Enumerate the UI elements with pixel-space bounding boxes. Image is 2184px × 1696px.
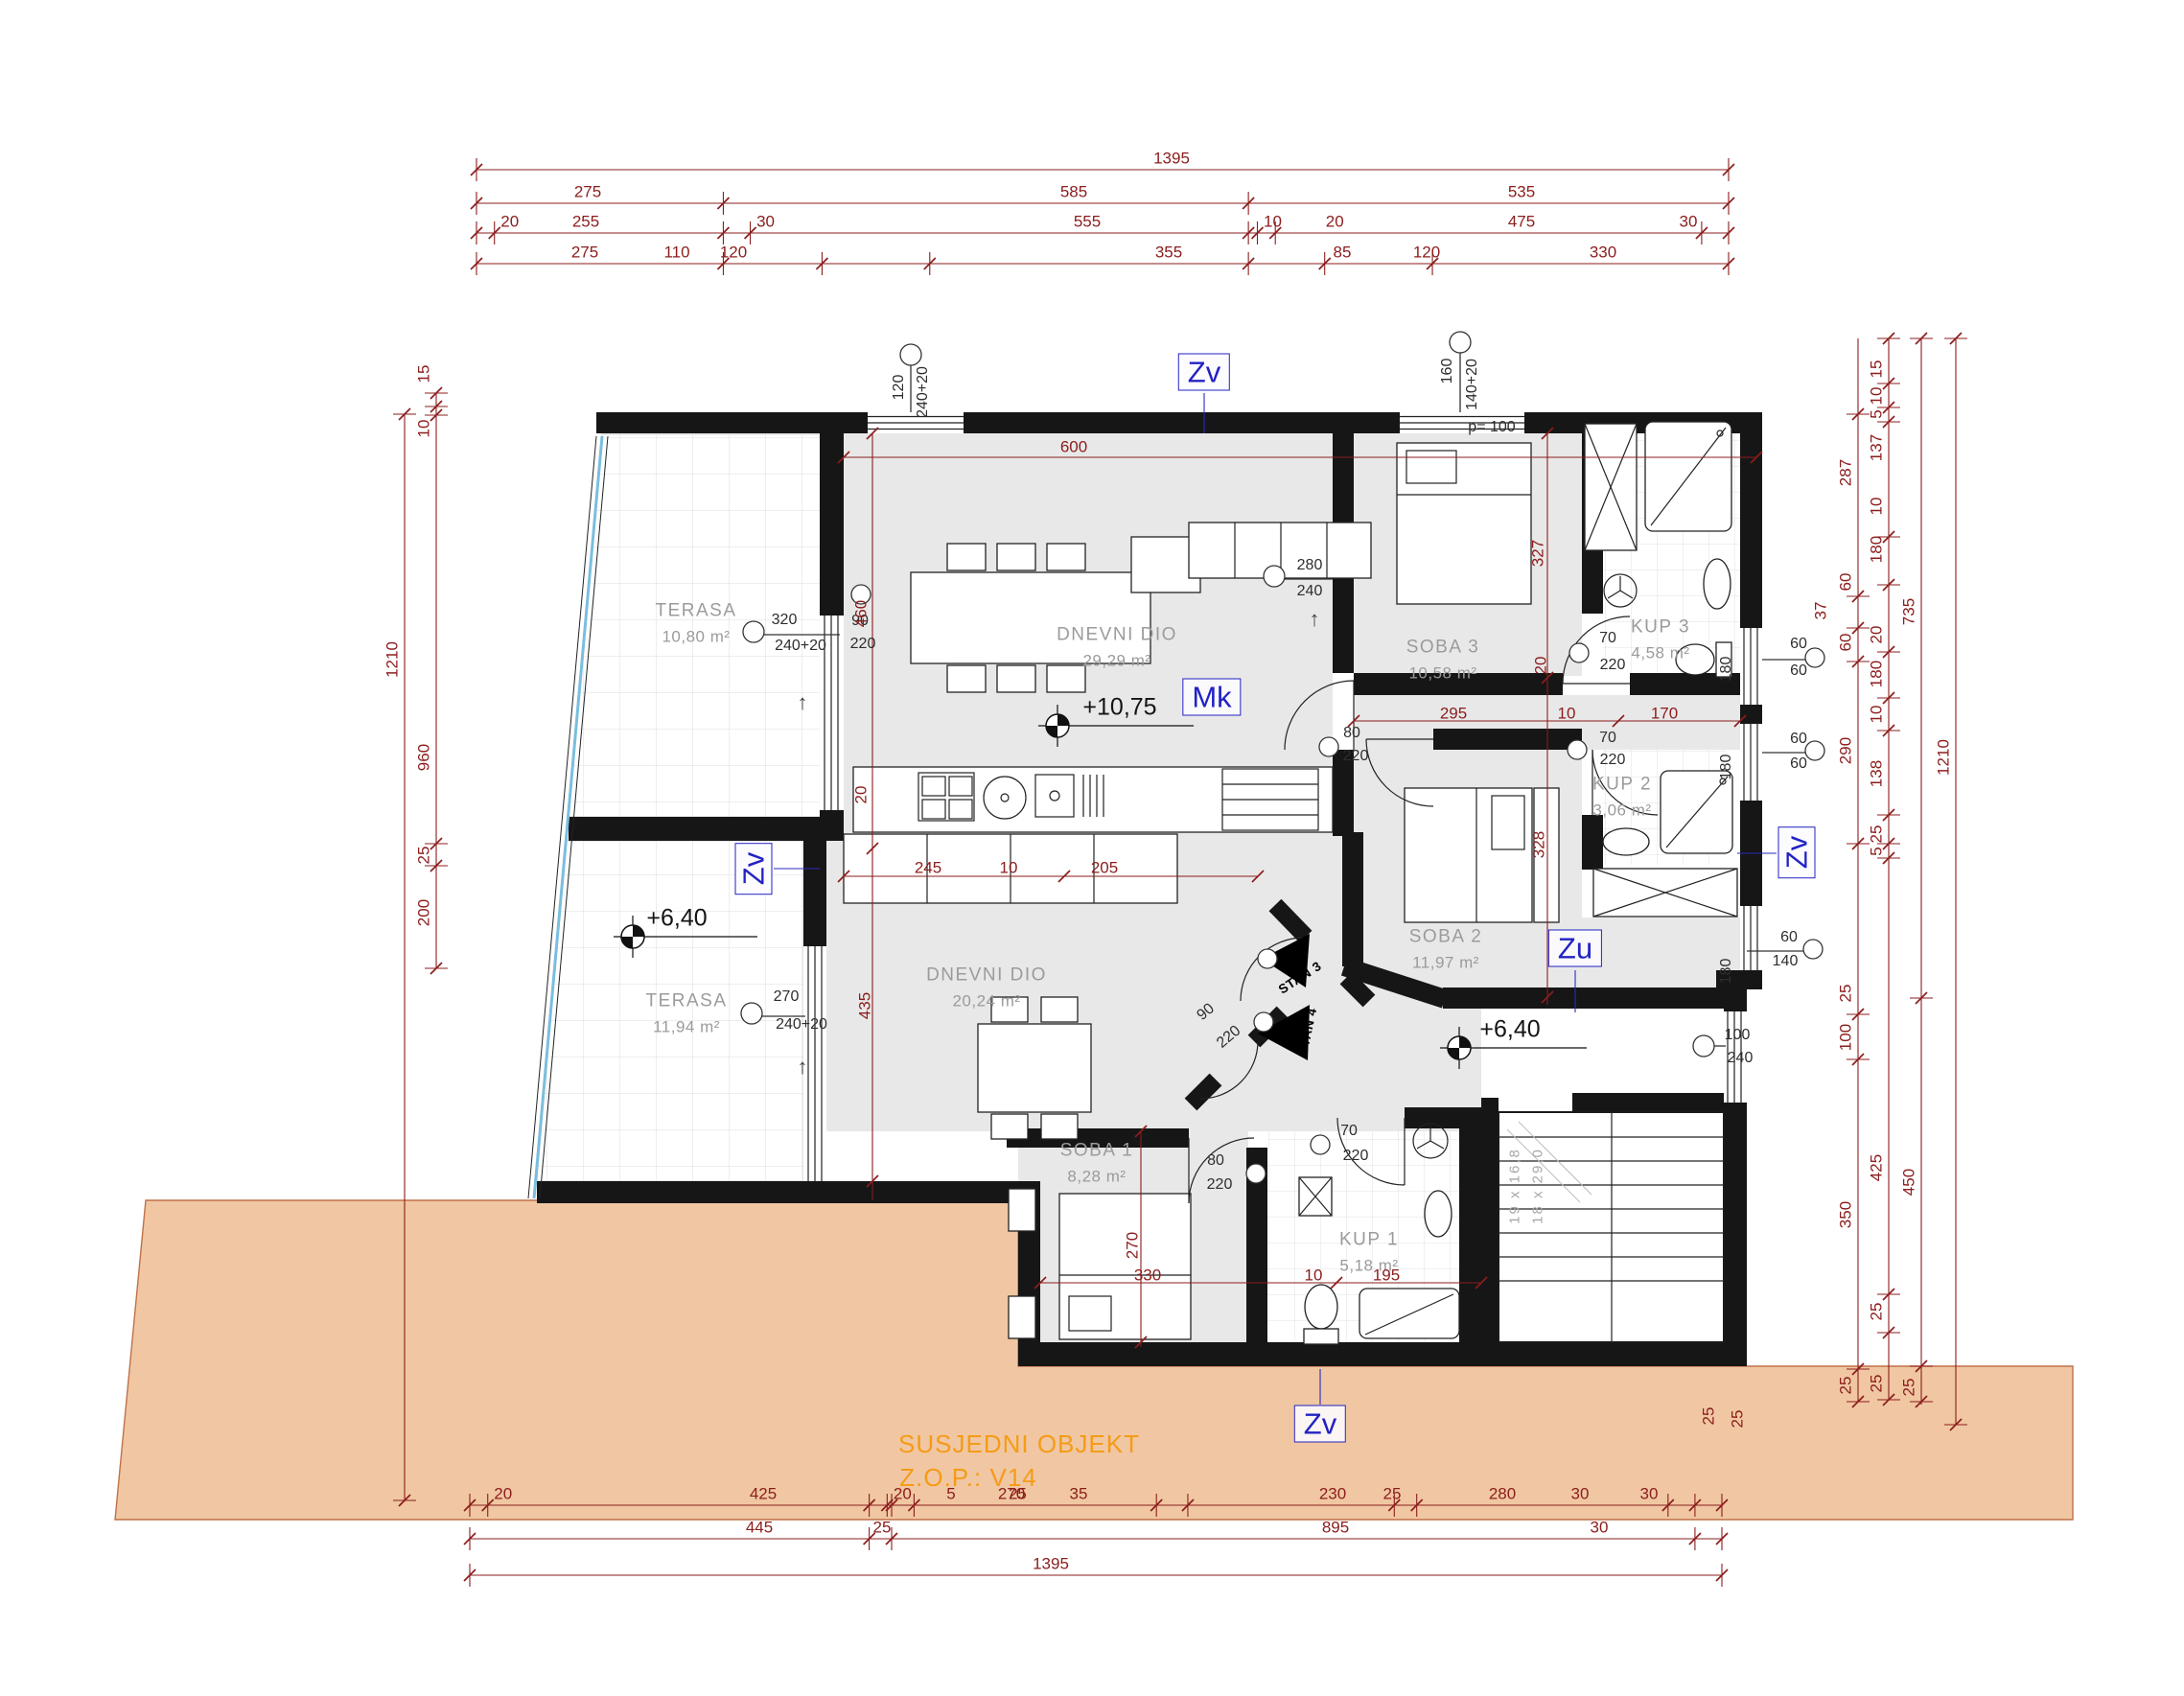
internal-dimension: 20: [853, 786, 870, 804]
room-label: TERASA: [655, 602, 736, 620]
internal-dimension: 25: [1730, 1410, 1746, 1429]
window-spec-label: 180: [1719, 959, 1734, 985]
room-label: DNEVNI DIO: [1057, 626, 1177, 644]
door-spec-label: 220: [1343, 749, 1369, 764]
chain-dimension: 20: [500, 214, 519, 230]
chain-dimension: 1210: [1936, 739, 1952, 776]
window-spec-label: 180: [1719, 755, 1734, 780]
chain-dimension: 20: [1326, 214, 1344, 230]
window-spec-label: 270: [774, 989, 800, 1005]
chain-dimension: 450: [1901, 1169, 1917, 1196]
chain-dimension: 270: [998, 1486, 1025, 1502]
stamp-label: Zv: [1178, 354, 1230, 391]
window-spec-label: 240: [1728, 1051, 1754, 1066]
chain-dimension: 15: [416, 365, 432, 383]
window-spec-label: 240+20: [775, 639, 826, 654]
window-spec-label: 320: [772, 613, 798, 628]
chain-dimension: 25: [1838, 985, 1854, 1003]
door-spec-label: 220: [1215, 1023, 1244, 1051]
door-spec-label: 70: [1340, 1124, 1358, 1139]
window-spec-label: 60: [1780, 930, 1798, 945]
chain-dimension: 20: [494, 1486, 512, 1502]
room-area-label: 29,29 m²: [1082, 653, 1150, 669]
chain-dimension: 280: [1489, 1486, 1516, 1502]
note-label: p= 100: [1468, 420, 1515, 435]
chain-dimension: 25: [1869, 1303, 1885, 1321]
internal-dimension: 20: [1533, 657, 1549, 675]
chain-dimension: 290: [1838, 737, 1854, 764]
chain-dimension: 10: [1869, 498, 1885, 516]
internal-dimension: 330: [1134, 1267, 1161, 1284]
room-area-label: 10,80 m²: [662, 629, 730, 645]
chain-dimension: 30: [1571, 1486, 1590, 1502]
chain-dimension: 25: [1838, 1377, 1854, 1395]
chain-dimension: 1395: [1033, 1556, 1069, 1572]
door-spec-label: 80: [1207, 1153, 1224, 1169]
floor-plan: TERASA10,80 m²TERASA11,94 m²DNEVNI DIO29…: [0, 0, 2184, 1696]
window-spec-label: 240+20: [776, 1017, 827, 1033]
level-label: +6,40: [1479, 1018, 1540, 1042]
internal-dimension: 295: [1440, 706, 1467, 722]
direction-arrow: ↑: [798, 692, 808, 713]
window-spec-label: 240+20: [916, 366, 931, 418]
window-spec-label: 100: [1725, 1028, 1751, 1043]
window-spec-label: 120: [892, 375, 907, 401]
room-label: KUP 2: [1592, 776, 1652, 794]
chain-dimension: 895: [1322, 1520, 1349, 1536]
door-spec-label: 80: [1343, 726, 1360, 741]
chain-dimension: 355: [1155, 244, 1182, 261]
chain-dimension: 25: [1901, 1379, 1917, 1397]
chain-dimension: 425: [750, 1486, 777, 1502]
chain-dimension: 138: [1869, 760, 1885, 787]
chain-dimension: 735: [1901, 598, 1917, 625]
stan-label: STAN 3: [1276, 960, 1323, 997]
door-spec-label: 220: [1600, 658, 1626, 673]
chain-dimension: 120: [720, 244, 747, 261]
chain-dimension: 20: [894, 1486, 912, 1502]
internal-dimension: 10: [1000, 860, 1018, 876]
room-area-label: 10,58 m²: [1408, 665, 1476, 682]
door-spec-label: 220: [1343, 1149, 1369, 1164]
room-label: KUP 1: [1339, 1231, 1399, 1249]
chain-dimension: 10: [1264, 214, 1282, 230]
chain-dimension: 35: [1070, 1486, 1088, 1502]
direction-arrow: ↑: [798, 1057, 808, 1078]
chain-dimension: 85: [1334, 244, 1352, 261]
chain-dimension: 25: [1869, 1375, 1885, 1393]
chain-dimension: 10: [1869, 387, 1885, 406]
room-label: TERASA: [645, 992, 727, 1011]
internal-dimension: 435: [857, 992, 873, 1019]
stamp-label: Zv: [1778, 826, 1816, 878]
internal-dimension: 195: [1373, 1267, 1400, 1284]
chain-dimension: 5: [1869, 847, 1885, 855]
chain-dimension: 200: [416, 899, 432, 926]
chain-dimension: 275: [574, 184, 601, 200]
chain-dimension: 60: [1838, 634, 1854, 652]
door-spec-label: 220: [850, 637, 876, 652]
internal-dimension: 205: [1091, 860, 1118, 876]
door-spec-label: 70: [1599, 731, 1616, 746]
chain-dimension: 100: [1838, 1024, 1854, 1051]
chain-dimension: 180: [1869, 536, 1885, 563]
stairs-label: 18 x 29,0: [1531, 1148, 1545, 1224]
chain-dimension: 37: [1813, 602, 1829, 620]
neighbor-label: SUSJEDNI OBJEKT: [898, 1431, 1140, 1456]
room-area-label: 20,24 m²: [952, 993, 1020, 1010]
chain-dimension: 287: [1838, 459, 1854, 486]
stamp-label: Zv: [735, 843, 773, 894]
room-label: KUP 3: [1631, 618, 1690, 637]
chain-dimension: 585: [1060, 184, 1087, 200]
window-spec-label: 160: [1440, 359, 1455, 384]
window-spec-label: 60: [1790, 637, 1807, 652]
chain-dimension: 330: [1590, 244, 1616, 261]
chain-dimension: 445: [746, 1520, 773, 1536]
window-spec-label: 280: [1297, 558, 1323, 573]
chain-dimension: 20: [1869, 626, 1885, 644]
internal-dimension: 460: [853, 600, 870, 627]
chain-dimension: 25: [1869, 825, 1885, 844]
chain-dimension: 350: [1838, 1201, 1854, 1228]
chain-dimension: 555: [1074, 214, 1101, 230]
window-spec-label: 140: [1773, 954, 1799, 969]
chain-dimension: 30: [1640, 1486, 1659, 1502]
chain-dimension: 15: [1869, 360, 1885, 379]
room-label: SOBA 1: [1060, 1142, 1134, 1160]
chain-dimension: 425: [1869, 1154, 1885, 1181]
internal-dimension: 245: [915, 860, 941, 876]
internal-dimension: 327: [1530, 540, 1546, 567]
chain-dimension: 960: [416, 744, 432, 771]
stairs-label: 19 x 16,8: [1508, 1148, 1522, 1224]
chain-dimension: 180: [1869, 661, 1885, 687]
internal-dimension: 270: [1125, 1232, 1141, 1259]
room-label: DNEVNI DIO: [926, 966, 1047, 985]
chain-dimension: 535: [1508, 184, 1535, 200]
internal-dimension: 25: [1701, 1407, 1717, 1426]
chain-dimension: 10: [1869, 706, 1885, 724]
internal-dimension: 328: [1531, 831, 1547, 858]
chain-dimension: 120: [1413, 244, 1440, 261]
door-spec-label: 70: [1599, 631, 1616, 646]
door-spec-label: 220: [1600, 753, 1626, 768]
stamp-label: Mk: [1182, 679, 1241, 716]
level-label: +6,40: [646, 907, 707, 931]
chain-dimension: 30: [756, 214, 775, 230]
window-spec-label: 60: [1790, 732, 1807, 747]
chain-dimension: 1210: [384, 641, 401, 678]
room-label: SOBA 2: [1409, 928, 1483, 946]
chain-dimension: 275: [571, 244, 598, 261]
stan-label: STAN 4: [1296, 1007, 1319, 1057]
room-label: SOBA 3: [1406, 639, 1480, 657]
chain-dimension: 25: [1383, 1486, 1402, 1502]
internal-dimension: 10: [1558, 706, 1576, 722]
internal-dimension: 170: [1651, 706, 1678, 722]
internal-dimension: 600: [1060, 439, 1087, 455]
room-area-label: 11,97 m²: [1412, 955, 1479, 971]
door-spec-label: 90: [1195, 1001, 1218, 1024]
window-spec-label: 60: [1790, 756, 1807, 772]
chain-dimension: 230: [1319, 1486, 1346, 1502]
chain-dimension: 5: [946, 1486, 955, 1502]
chain-dimension: 30: [1680, 214, 1698, 230]
room-area-label: 8,28 m²: [1067, 1169, 1126, 1185]
chain-dimension: 60: [1838, 573, 1854, 592]
chain-dimension: 30: [1591, 1520, 1609, 1536]
plan-labels: TERASA10,80 m²TERASA11,94 m²DNEVNI DIO29…: [0, 0, 2184, 1696]
door-spec-label: 220: [1207, 1177, 1233, 1193]
stamp-label: Zv: [1294, 1406, 1346, 1443]
room-area-label: 11,94 m²: [653, 1019, 720, 1035]
chain-dimension: 5: [1869, 409, 1885, 418]
room-area-label: 4,58 m²: [1631, 645, 1689, 662]
window-spec-label: 60: [1790, 663, 1807, 679]
window-spec-label: 140+20: [1465, 359, 1480, 410]
chain-dimension: 137: [1869, 434, 1885, 461]
direction-arrow: ↑: [1310, 609, 1320, 630]
chain-dimension: 110: [663, 244, 689, 261]
chain-dimension: 475: [1508, 214, 1535, 230]
stamp-label: Zu: [1548, 930, 1602, 967]
chain-dimension: 25: [873, 1520, 892, 1536]
chain-dimension: 255: [572, 214, 599, 230]
chain-dimension: 1395: [1153, 151, 1190, 167]
room-area-label: 3,06 m²: [1592, 802, 1651, 819]
chain-dimension: 10: [416, 420, 432, 438]
internal-dimension: 10: [1305, 1267, 1323, 1284]
level-label: +10,75: [1082, 696, 1156, 720]
window-spec-label: 240: [1297, 584, 1323, 599]
window-spec-label: 180: [1719, 657, 1734, 683]
chain-dimension: 25: [416, 847, 432, 865]
